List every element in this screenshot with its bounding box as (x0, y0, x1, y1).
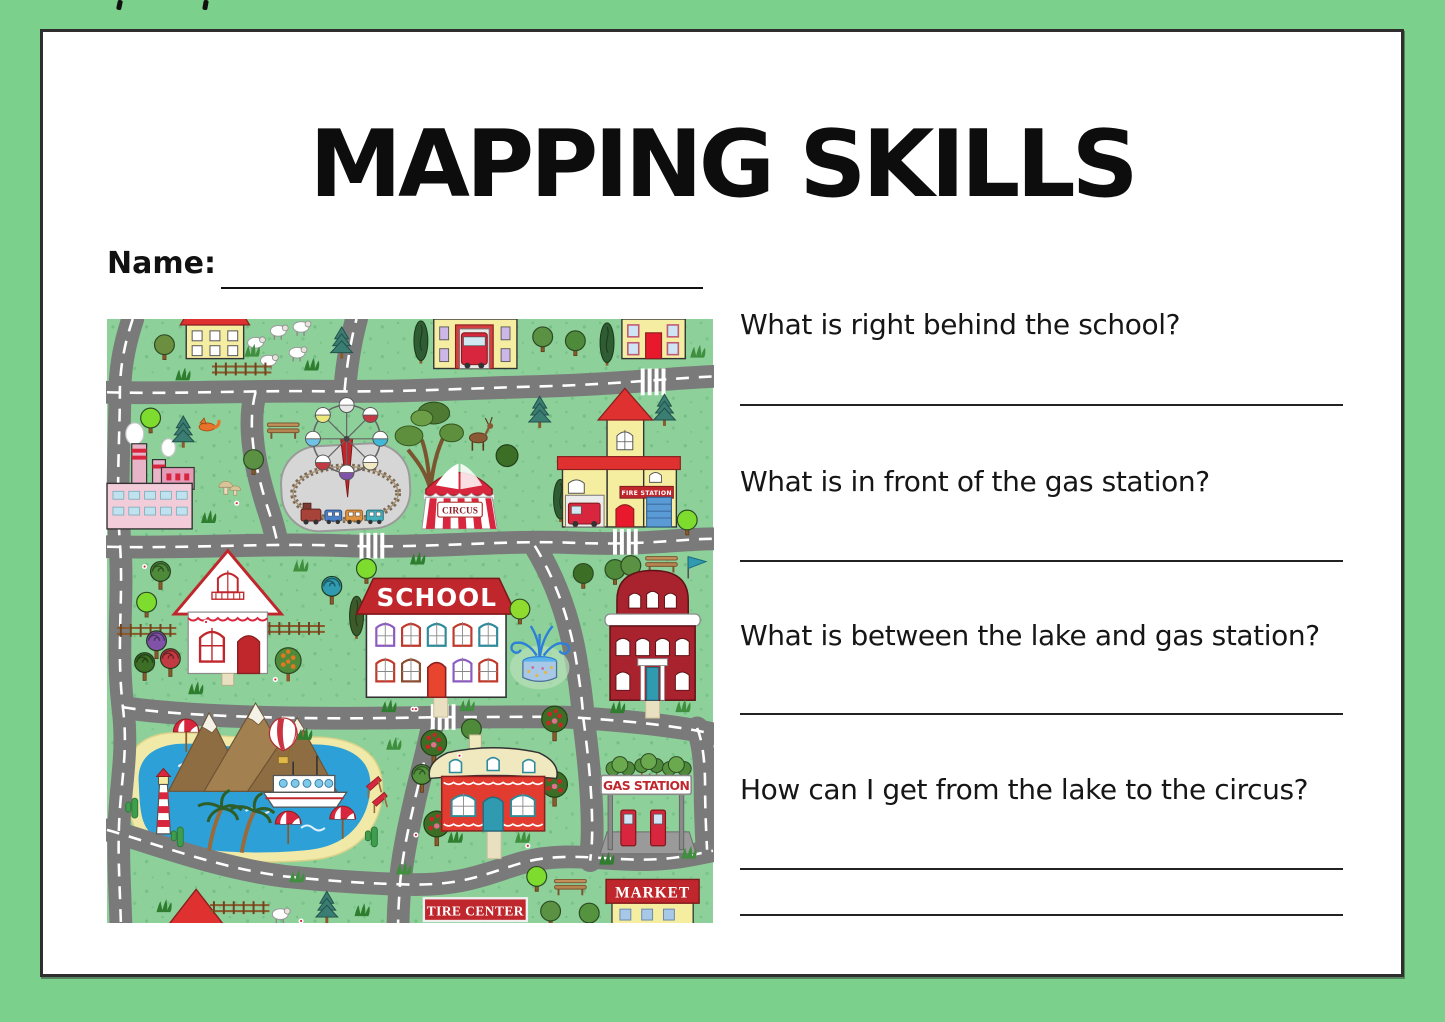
answer-line-1 (740, 404, 1343, 406)
gas-station-label: GAS STATION (603, 779, 689, 793)
name-label: Name: (107, 246, 216, 281)
school: SCHOOL (357, 578, 516, 717)
flower (142, 564, 147, 569)
page-title: MAPPING SKILLS (43, 110, 1401, 218)
cropped-text-mark (202, 0, 209, 10)
flower (203, 619, 208, 624)
bush (496, 445, 518, 467)
fire-station-label: FIRE STATION (622, 490, 672, 497)
town-map-illustration: CIRCUS FIRE STATION (106, 319, 714, 923)
answer-line-2 (740, 560, 1343, 562)
cropped-text-mark (116, 0, 123, 10)
bus-depot (434, 319, 517, 369)
fuel-pump (621, 810, 636, 846)
tire-center-label: TIRE CENTER (427, 904, 524, 919)
market-label: MARKET (615, 884, 690, 901)
name-write-line (221, 287, 703, 289)
worksheet-page: MAPPING SKILLS Name: (40, 29, 1404, 977)
yellow-house-top-left (180, 319, 249, 359)
question-1: What is right behind the school? (740, 308, 1360, 341)
answer-line-4a (740, 868, 1343, 870)
flower (525, 843, 530, 848)
name-row: Name: (107, 246, 216, 281)
market: MARKET (606, 879, 699, 923)
fuel-pump (651, 810, 666, 846)
flower (413, 832, 418, 837)
town-map-svg: CIRCUS FIRE STATION (106, 319, 714, 923)
flower (413, 707, 418, 712)
answer-line-4b (740, 914, 1343, 916)
circus-label: CIRCUS (442, 507, 478, 517)
tree (579, 903, 599, 923)
tire-center: TIRE CENTER (424, 898, 527, 921)
answer-line-3 (740, 713, 1343, 715)
school-label: SCHOOL (376, 583, 497, 612)
flower (457, 753, 462, 758)
lighthouse (157, 769, 171, 834)
yellow-house-top-right (622, 319, 685, 359)
question-2: What is in front of the gas station? (740, 465, 1360, 498)
flower (234, 501, 239, 506)
question-3: What is between the lake and gas station… (740, 619, 1360, 652)
question-4: How can I get from the lake to the circu… (740, 773, 1360, 806)
flower (273, 677, 278, 682)
